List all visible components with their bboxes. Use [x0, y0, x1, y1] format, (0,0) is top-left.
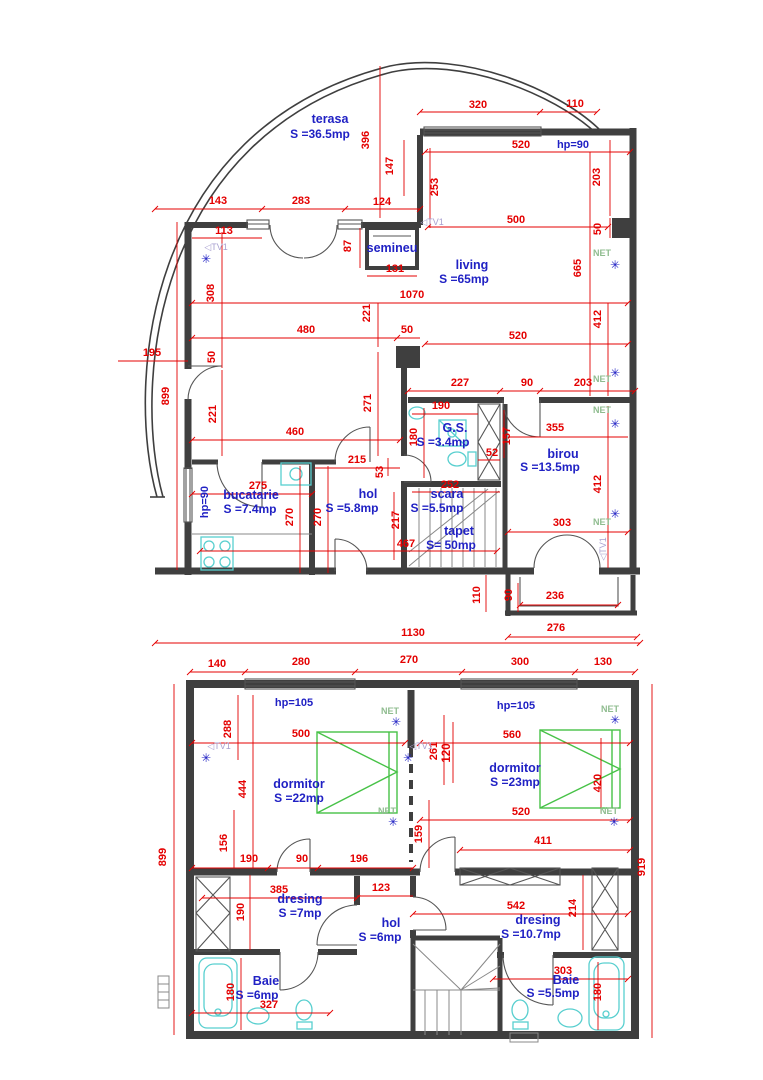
dimension-lines: [118, 66, 643, 646]
dimension-label: 214: [567, 898, 579, 917]
dimension-label: 665: [572, 259, 584, 277]
dimension-label: 327: [260, 999, 278, 1011]
dimension-label: 147: [384, 157, 396, 175]
architectural-floor-plan: terasaS =36.5mplivingS =65mpsemineubucat…: [0, 0, 763, 1080]
room-area: S =36.5mp: [290, 127, 350, 141]
tv-outlet-label: ◁TV1: [204, 242, 227, 252]
outlet-star-icon: ✳: [388, 815, 398, 829]
room-area: S =5.8mp: [325, 501, 378, 515]
dimension-label: 131: [386, 263, 404, 275]
dimension-label: 227: [451, 377, 469, 389]
dimension-label: 196: [350, 853, 368, 865]
room-name: G.S.: [442, 421, 467, 435]
room-name: Baie: [253, 974, 279, 988]
dimension-label: 1070: [400, 289, 424, 301]
net-outlet-label: NET: [593, 405, 612, 415]
dimension-label: 520: [509, 330, 527, 342]
tv-outlet-label: ◁TV1: [409, 741, 432, 751]
terasa-curved-wall: [145, 63, 599, 497]
dimension-label: 215: [348, 454, 366, 466]
dimension-label: 217: [390, 511, 402, 529]
dimension-label: 308: [205, 284, 217, 302]
dimension-label: 190: [240, 853, 258, 865]
room-area: S =23mp: [490, 775, 540, 789]
dimension-label: 190: [235, 903, 247, 921]
floor-plan-page: terasaS =36.5mplivingS =65mpsemineubucat…: [0, 0, 763, 1080]
outlet-star-icon: ✳: [609, 815, 619, 829]
room-area: S =10.7mp: [501, 927, 561, 941]
room-area: S =5.5mp: [526, 986, 579, 1000]
dimension-label: 113: [215, 225, 233, 237]
dimension-label: 143: [209, 195, 227, 207]
room-name: terasa: [312, 112, 350, 126]
dimension-label: 300: [511, 656, 529, 668]
outlet-star-icon: ✳: [610, 507, 620, 521]
dimension-label: 460: [286, 426, 304, 438]
dimension-label: 280: [292, 656, 310, 668]
dimension-label: 899: [157, 848, 169, 866]
room-area: S =65mp: [439, 272, 489, 286]
outlet-star-icon: ✳: [610, 417, 620, 431]
outlet-star-icon: ✳: [610, 366, 620, 380]
dimension-label: 276: [547, 622, 565, 634]
net-outlet-label: NET: [593, 374, 612, 384]
dimension-label: 270: [312, 508, 324, 526]
dimension-label: 221: [361, 304, 373, 322]
dimension-label: 90: [503, 589, 515, 601]
dimension-label: 180: [408, 428, 420, 446]
dimension-label: 520: [512, 806, 530, 818]
ventilation-shaft: [478, 404, 500, 480]
room-area: S =22mp: [274, 791, 324, 805]
ground-floor-plan: terasaS =36.5mplivingS =65mpsemineubucat…: [118, 63, 643, 646]
dimension-label: 90: [521, 377, 533, 389]
room-name: tapet: [444, 524, 475, 538]
tv-outlet-label: ◁TV1: [207, 741, 230, 751]
parapet-height-label: hp=105: [275, 697, 313, 709]
dimension-label: 120: [441, 743, 453, 762]
dimension-label: 303: [554, 965, 572, 977]
dimension-label: 253: [429, 178, 441, 196]
room-name: living: [456, 258, 489, 272]
dimension-label: 203: [574, 377, 592, 389]
tv-outlet-label: ◁TV1: [598, 537, 608, 560]
room-area: S =13.5mp: [520, 460, 580, 474]
dimension-label: 412: [592, 475, 604, 493]
dimension-label: 180: [225, 983, 237, 1001]
dimension-label: 140: [208, 658, 226, 670]
dimension-label: 500: [507, 214, 525, 226]
dimension-label: 411: [534, 835, 552, 847]
outlet-star-icon: ✳: [610, 258, 620, 272]
room-name: dormitor: [273, 777, 325, 791]
dimension-label: 899: [160, 387, 172, 405]
dimension-label: 156: [218, 834, 230, 852]
wall-pier: [612, 218, 634, 238]
outlet-star-icon: ✳: [391, 715, 401, 729]
room-name: dormitor: [489, 761, 541, 775]
dimension-label: 130: [594, 656, 612, 668]
net-outlet-label: NET: [593, 248, 612, 258]
dimension-label: 560: [503, 729, 521, 741]
dimension-label: 110: [566, 98, 584, 110]
staircase-upper: [413, 944, 538, 1042]
dimension-label: 190: [432, 400, 450, 412]
dimension-label: 159: [413, 825, 425, 843]
room-name: hol: [382, 916, 401, 930]
dimension-label: 157: [501, 427, 513, 445]
beds: [317, 730, 620, 813]
dimension-label: 500: [292, 728, 310, 740]
outlet-star-icon: ✳: [201, 751, 211, 765]
room-area: S =3.4mp: [416, 435, 469, 449]
parapet-height-label: hp=90: [199, 486, 211, 518]
room-area: S =5.5mp: [410, 501, 463, 515]
room-name: dresing: [515, 913, 560, 927]
dimension-label: 236: [546, 590, 564, 602]
room-area: S= 50mp: [426, 538, 476, 552]
dimension-label: 412: [592, 310, 604, 328]
dimension-label: 420: [592, 774, 604, 792]
dimension-label: 124: [373, 196, 392, 208]
dimension-label: 385: [270, 884, 288, 896]
room-name: hol: [359, 487, 378, 501]
dimension-label: 180: [592, 983, 604, 1001]
dimension-label: 520: [512, 139, 530, 151]
outlet-star-icon: ✳: [201, 252, 211, 266]
dimension-label: 50: [401, 324, 413, 336]
dimension-label: 87: [342, 240, 354, 252]
parapet-height-label: hp=105: [497, 700, 535, 712]
room-area: S =6mp: [358, 930, 401, 944]
dimension-label: 303: [553, 517, 571, 529]
dimension-label: 275: [249, 480, 267, 492]
dimension-label: 123: [372, 882, 390, 894]
dimension-label: 50: [206, 351, 218, 363]
net-outlet-label: NET: [593, 517, 612, 527]
dimension-label: 221: [207, 405, 219, 423]
dimension-label: 52: [486, 447, 498, 459]
dimension-label: 50: [592, 223, 604, 235]
room-area: S =7mp: [278, 906, 321, 920]
parapet-height-label: hp=90: [557, 139, 589, 151]
dimension-label: 542: [507, 900, 525, 912]
room-name: birou: [547, 447, 578, 461]
dimension-label: 444: [237, 779, 249, 798]
dimension-label: 252: [441, 479, 459, 491]
dimension-label: 90: [296, 853, 308, 865]
dimension-label: 396: [360, 131, 372, 149]
tv-outlet-label: ◁TV1: [420, 217, 443, 227]
dimension-label: 283: [292, 195, 310, 207]
dimension-label: 270: [400, 654, 418, 666]
room-name: semineu: [367, 241, 418, 255]
dimension-label: 110: [471, 586, 483, 604]
outlet-star-icon: ✳: [610, 713, 620, 727]
dimension-label: 271: [362, 394, 374, 412]
dimension-label: 53: [374, 466, 386, 478]
outlet-star-icon: ✳: [403, 751, 413, 765]
dimension-label: 195: [143, 347, 161, 359]
room-area: S =7.4mp: [223, 502, 276, 516]
upper-floor-plan: dormitorS =22mpdormitorS =23mpdresingS =…: [157, 654, 652, 1042]
dimension-label: 320: [469, 99, 487, 111]
dimension-label: 288: [222, 720, 234, 738]
dimension-label: 1130: [401, 627, 425, 639]
dimension-label: 270: [284, 508, 296, 526]
dimension-label: 919: [636, 858, 648, 876]
dimension-label: 480: [297, 324, 315, 336]
dimension-label: 467: [397, 538, 415, 550]
dimension-label: 203: [591, 168, 603, 186]
dimension-label: 355: [546, 422, 564, 434]
